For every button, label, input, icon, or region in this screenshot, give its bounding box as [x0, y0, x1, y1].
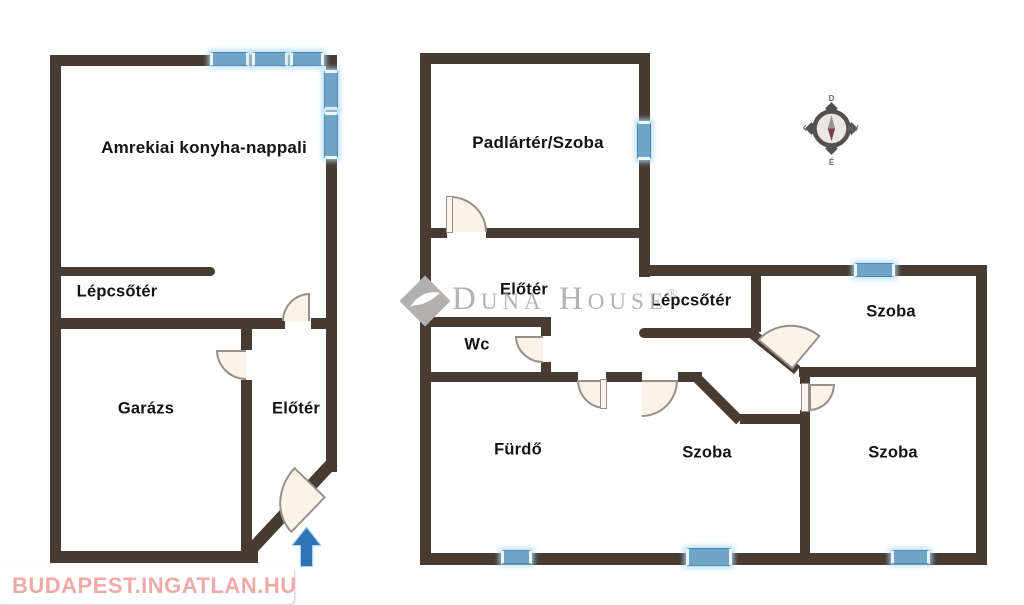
wall: [751, 276, 761, 332]
window: [324, 70, 338, 110]
window: [252, 52, 288, 66]
compass-letter-bottom: É: [829, 158, 835, 167]
compass-letter-left: K: [803, 124, 807, 133]
wall: [241, 380, 252, 558]
ingatlan-watermark-text: BUDAPEST.INGATLAN.HU: [12, 573, 297, 599]
duna-house-watermark: Duna House®: [452, 281, 677, 318]
room-label: Amrekiai konyha-nappali: [101, 138, 307, 158]
wall: [311, 318, 337, 329]
door-leaf: [446, 196, 453, 233]
wall: [639, 53, 650, 277]
room-label: Szoba: [868, 444, 918, 463]
wall: [799, 367, 987, 377]
duna-house-diamond-icon: [396, 275, 454, 327]
floor-plan-canvas: Amrekiai konyha-nappali Lépcsőtér Garázs…: [0, 0, 1024, 605]
compass-letter-right: NY: [848, 124, 860, 133]
wall: [541, 317, 551, 336]
wall: [486, 228, 650, 238]
window: [686, 548, 732, 566]
wall: [431, 372, 578, 382]
room-label: Szoba: [866, 303, 916, 322]
duna-house-text: Duna House: [452, 281, 668, 317]
door-leaf: [801, 383, 809, 412]
wall: [800, 410, 810, 557]
wall-diagonal: [691, 372, 743, 424]
entrance-arrow-icon: [291, 526, 322, 568]
room-label: Padlártér/Szoba: [472, 133, 604, 153]
door-swing: [809, 384, 835, 411]
room-label: Lépcsőtér: [77, 283, 158, 302]
window: [290, 52, 324, 66]
wall: [976, 265, 987, 565]
door-swing: [515, 336, 543, 363]
wall: [606, 372, 642, 382]
wall: [639, 265, 987, 276]
room-label: Wc: [464, 336, 489, 355]
wall: [740, 414, 805, 424]
door-swing: [450, 196, 487, 232]
compass-rose-icon: D É K NY: [803, 94, 861, 168]
window: [324, 112, 338, 159]
room-label: Előtér: [272, 400, 320, 419]
room-label: Fürdő: [494, 441, 542, 460]
window: [891, 550, 930, 564]
wall: [241, 318, 252, 350]
door-swing: [757, 306, 821, 369]
window: [637, 121, 651, 160]
room-label: Szoba: [682, 444, 732, 463]
window: [501, 550, 532, 564]
door-swing: [282, 293, 310, 321]
window: [210, 52, 249, 66]
room-label: Garázs: [118, 400, 174, 419]
compass-letter-top: D: [829, 94, 835, 103]
door-swing: [216, 350, 246, 380]
wall: [639, 328, 759, 338]
ingatlan-watermark: BUDAPEST.INGATLAN.HU: [0, 567, 294, 604]
registered-mark: ®: [668, 286, 677, 300]
wall: [50, 55, 61, 563]
window: [854, 263, 895, 277]
wall: [50, 551, 258, 563]
wall-half: [61, 267, 215, 276]
door-swing: [642, 380, 678, 417]
door-leaf: [600, 379, 607, 409]
wall: [431, 228, 447, 238]
wall: [420, 53, 650, 64]
